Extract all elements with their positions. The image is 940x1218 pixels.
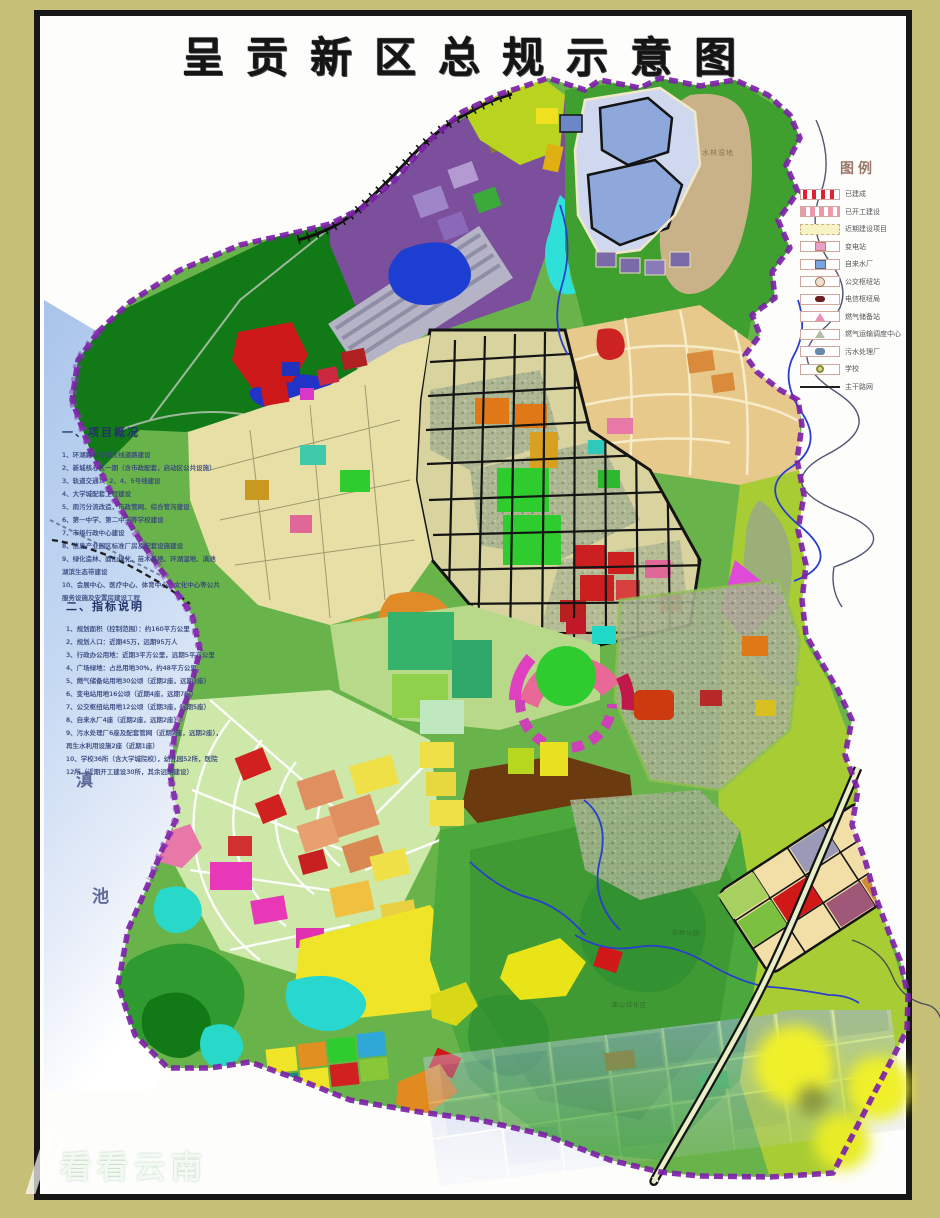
substation-swatch [800, 241, 840, 252]
legend-panel: 图例 已建成 已开工建设 近期建设项目 变电站 自来水厂 公交枢纽站 电信枢纽局… [800, 158, 938, 398]
waterworks-swatch [800, 259, 840, 270]
legend-item: 公交枢纽站 [800, 276, 938, 288]
sewage-swatch [800, 346, 840, 357]
legend-item: 近期建设项目 [800, 223, 938, 235]
legend-item: 主干路网 [800, 381, 938, 393]
watermark-text: 看看云南 [60, 1142, 208, 1187]
legend-item: 已建成 [800, 188, 938, 200]
project-overview: 一、项目概况 1、环湖路和环湖东线道路建设 2、新城核心区一期（含市政配套，启动… [62, 424, 220, 605]
gas-dispatch-swatch [800, 329, 840, 340]
gas-storage-swatch [800, 311, 840, 322]
near-term-swatch [800, 224, 840, 235]
legend-item: 燃气运输调度中心 [800, 328, 938, 340]
indicator-notes: 二、指标说明 1、规划面积（控制范围）：约160平方公里 2、规划人口：近期45… [66, 598, 224, 779]
bus-hub-swatch [800, 276, 840, 287]
legend-item: 学校 [800, 363, 938, 375]
legend-item: 电信枢纽局 [800, 293, 938, 305]
map-label-park: 郊野公园 [672, 928, 700, 937]
legend-item: 已开工建设 [800, 206, 938, 218]
map-label-northeast: 水林湿地 [702, 148, 734, 158]
indicators-heading: 二、指标说明 [66, 598, 224, 614]
overview-heading: 一、项目概况 [62, 424, 220, 440]
school-swatch [800, 364, 840, 375]
legend-item: 变电站 [800, 241, 938, 253]
road-network-swatch [800, 386, 840, 388]
map-label-hill: 面山绿化区 [612, 1000, 647, 1009]
legend-item: 污水处理厂 [800, 346, 938, 358]
page-title: 呈贡新区总规示意图 [0, 24, 940, 85]
legend-item: 自来水厂 [800, 258, 938, 270]
built-swatch [800, 189, 840, 200]
under-construction-swatch [800, 206, 840, 217]
screenshot-root: { "title": "呈贡新区总规示意图", "colors": { "pag… [0, 0, 940, 1218]
legend-title: 图例 [840, 158, 938, 178]
legend-item: 燃气储备站 [800, 311, 938, 323]
telecom-swatch [800, 294, 840, 305]
